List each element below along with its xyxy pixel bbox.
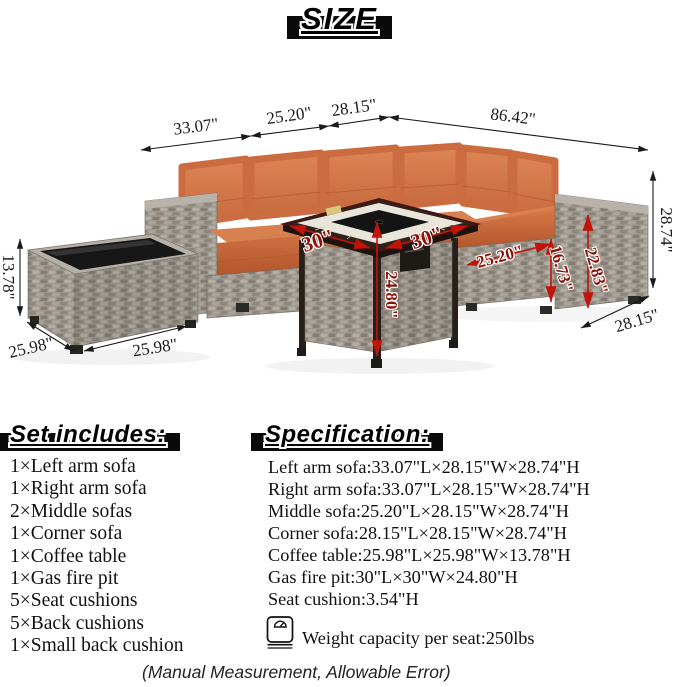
kitchen-scale-icon: [266, 615, 295, 649]
set-item: 5×Seat cushions: [10, 590, 255, 612]
specification-section: Specification: Left arm sofa:33.07"L×28.…: [265, 421, 675, 649]
set-includes-section: Set includes: 1×Left arm sofa 1×Right ar…: [10, 421, 255, 658]
set-item: 2×Middle sofas: [10, 501, 255, 523]
spec-line: Right arm sofa:33.07"L×28.15"W×28.74"H: [268, 478, 675, 500]
set-item: 1×Gas fire pit: [10, 568, 255, 590]
spec-line: Left arm sofa:33.07"L×28.15"W×28.74"H: [268, 456, 675, 478]
set-item: 1×Left arm sofa: [10, 456, 255, 478]
set-includes-heading: Set includes:: [10, 421, 166, 448]
dim-firepit-right: 30": [408, 221, 447, 255]
dim-left-arm-width: 33.07": [172, 114, 219, 139]
dim-sofa-depth: 28.15": [612, 305, 661, 337]
set-item: 1×Right arm sofa: [10, 478, 255, 500]
dim-seat-height: 16.73": [545, 243, 577, 294]
set-item: 1×Small back cushion: [10, 635, 255, 657]
specification-heading: Specification:: [265, 421, 429, 448]
dim-right-run-width: 86.42": [489, 104, 536, 129]
size-title: SIZE: [301, 1, 378, 36]
dim-middle-sofa-width: 25.20": [265, 103, 313, 129]
specification-heading-bar: Specification:: [265, 421, 429, 449]
dim-table-front: 25.98": [131, 335, 179, 362]
dim-sofa-height: 28.74": [656, 207, 676, 252]
set-item: 1×Corner sofa: [10, 523, 255, 545]
set-includes-list: 1×Left arm sofa 1×Right arm sofa 2×Middl…: [10, 456, 255, 658]
weight-capacity-text: Weight capacity per seat:250lbs: [302, 627, 535, 649]
dim-corner-width: 28.15": [330, 95, 378, 121]
dim-arm-height: 22.83": [580, 245, 612, 296]
spec-line: Middle sofa:25.20"L×28.15"W×28.74"H: [268, 500, 675, 522]
dim-table-side: 25.98": [7, 333, 56, 363]
weight-capacity-row: Weight capacity per seat:250lbs: [265, 615, 675, 649]
specification-list: Left arm sofa:33.07"L×28.15"W×28.74"H Ri…: [265, 456, 675, 610]
dim-firepit-height: 24.80": [381, 271, 401, 319]
set-item: 5×Back cushions: [10, 613, 255, 635]
product-size-diagram: SIZE: [0, 0, 679, 687]
dim-seat-depth: 25.20": [474, 241, 525, 273]
measurement-disclaimer: (Manual Measurement, Allowable Error): [142, 662, 451, 683]
spec-line: Corner sofa:28.15"L×28.15"W×28.74"H: [268, 522, 675, 544]
set-item: 1×Coffee table: [10, 546, 255, 568]
spec-line: Gas fire pit:30"L×30"W×24.80"H: [268, 566, 675, 588]
dim-table-height: 13.78": [0, 254, 18, 299]
size-title-block: SIZE: [0, 1, 679, 37]
set-includes-heading-bar: Set includes:: [10, 421, 166, 449]
spec-line: Seat cushion:3.54"H: [268, 588, 675, 610]
spec-line: Coffee table:25.98"L×25.98"W×13.78"H: [268, 544, 675, 566]
size-title-bar: SIZE: [301, 1, 378, 37]
dim-firepit-left: 30": [299, 224, 338, 258]
